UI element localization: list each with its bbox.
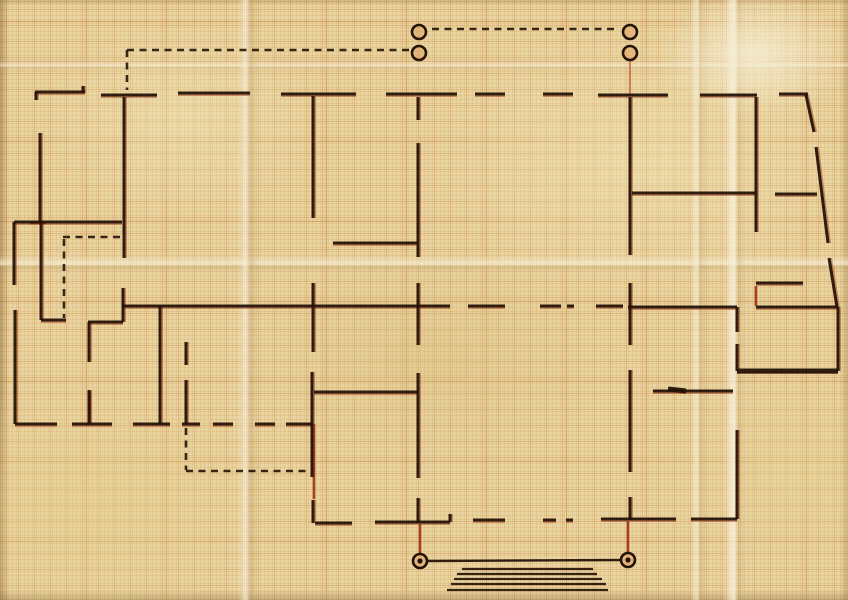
top-column-circle (412, 25, 426, 39)
wall-lines (14, 86, 838, 523)
top-column-circle (623, 25, 637, 39)
column-center-dot (417, 558, 422, 563)
floor-plan-drawing (0, 0, 848, 600)
top-column-circle (623, 46, 637, 60)
stair-landing-line (427, 560, 621, 561)
thick-wall-line (668, 389, 686, 391)
column-circles (412, 25, 637, 568)
wall-line (816, 147, 828, 243)
red-pencil-line (818, 147, 830, 243)
entrance-stairs (427, 560, 621, 590)
top-column-circle (412, 46, 426, 60)
scanned-floor-plan (0, 0, 848, 600)
column-center-dot (625, 557, 630, 562)
